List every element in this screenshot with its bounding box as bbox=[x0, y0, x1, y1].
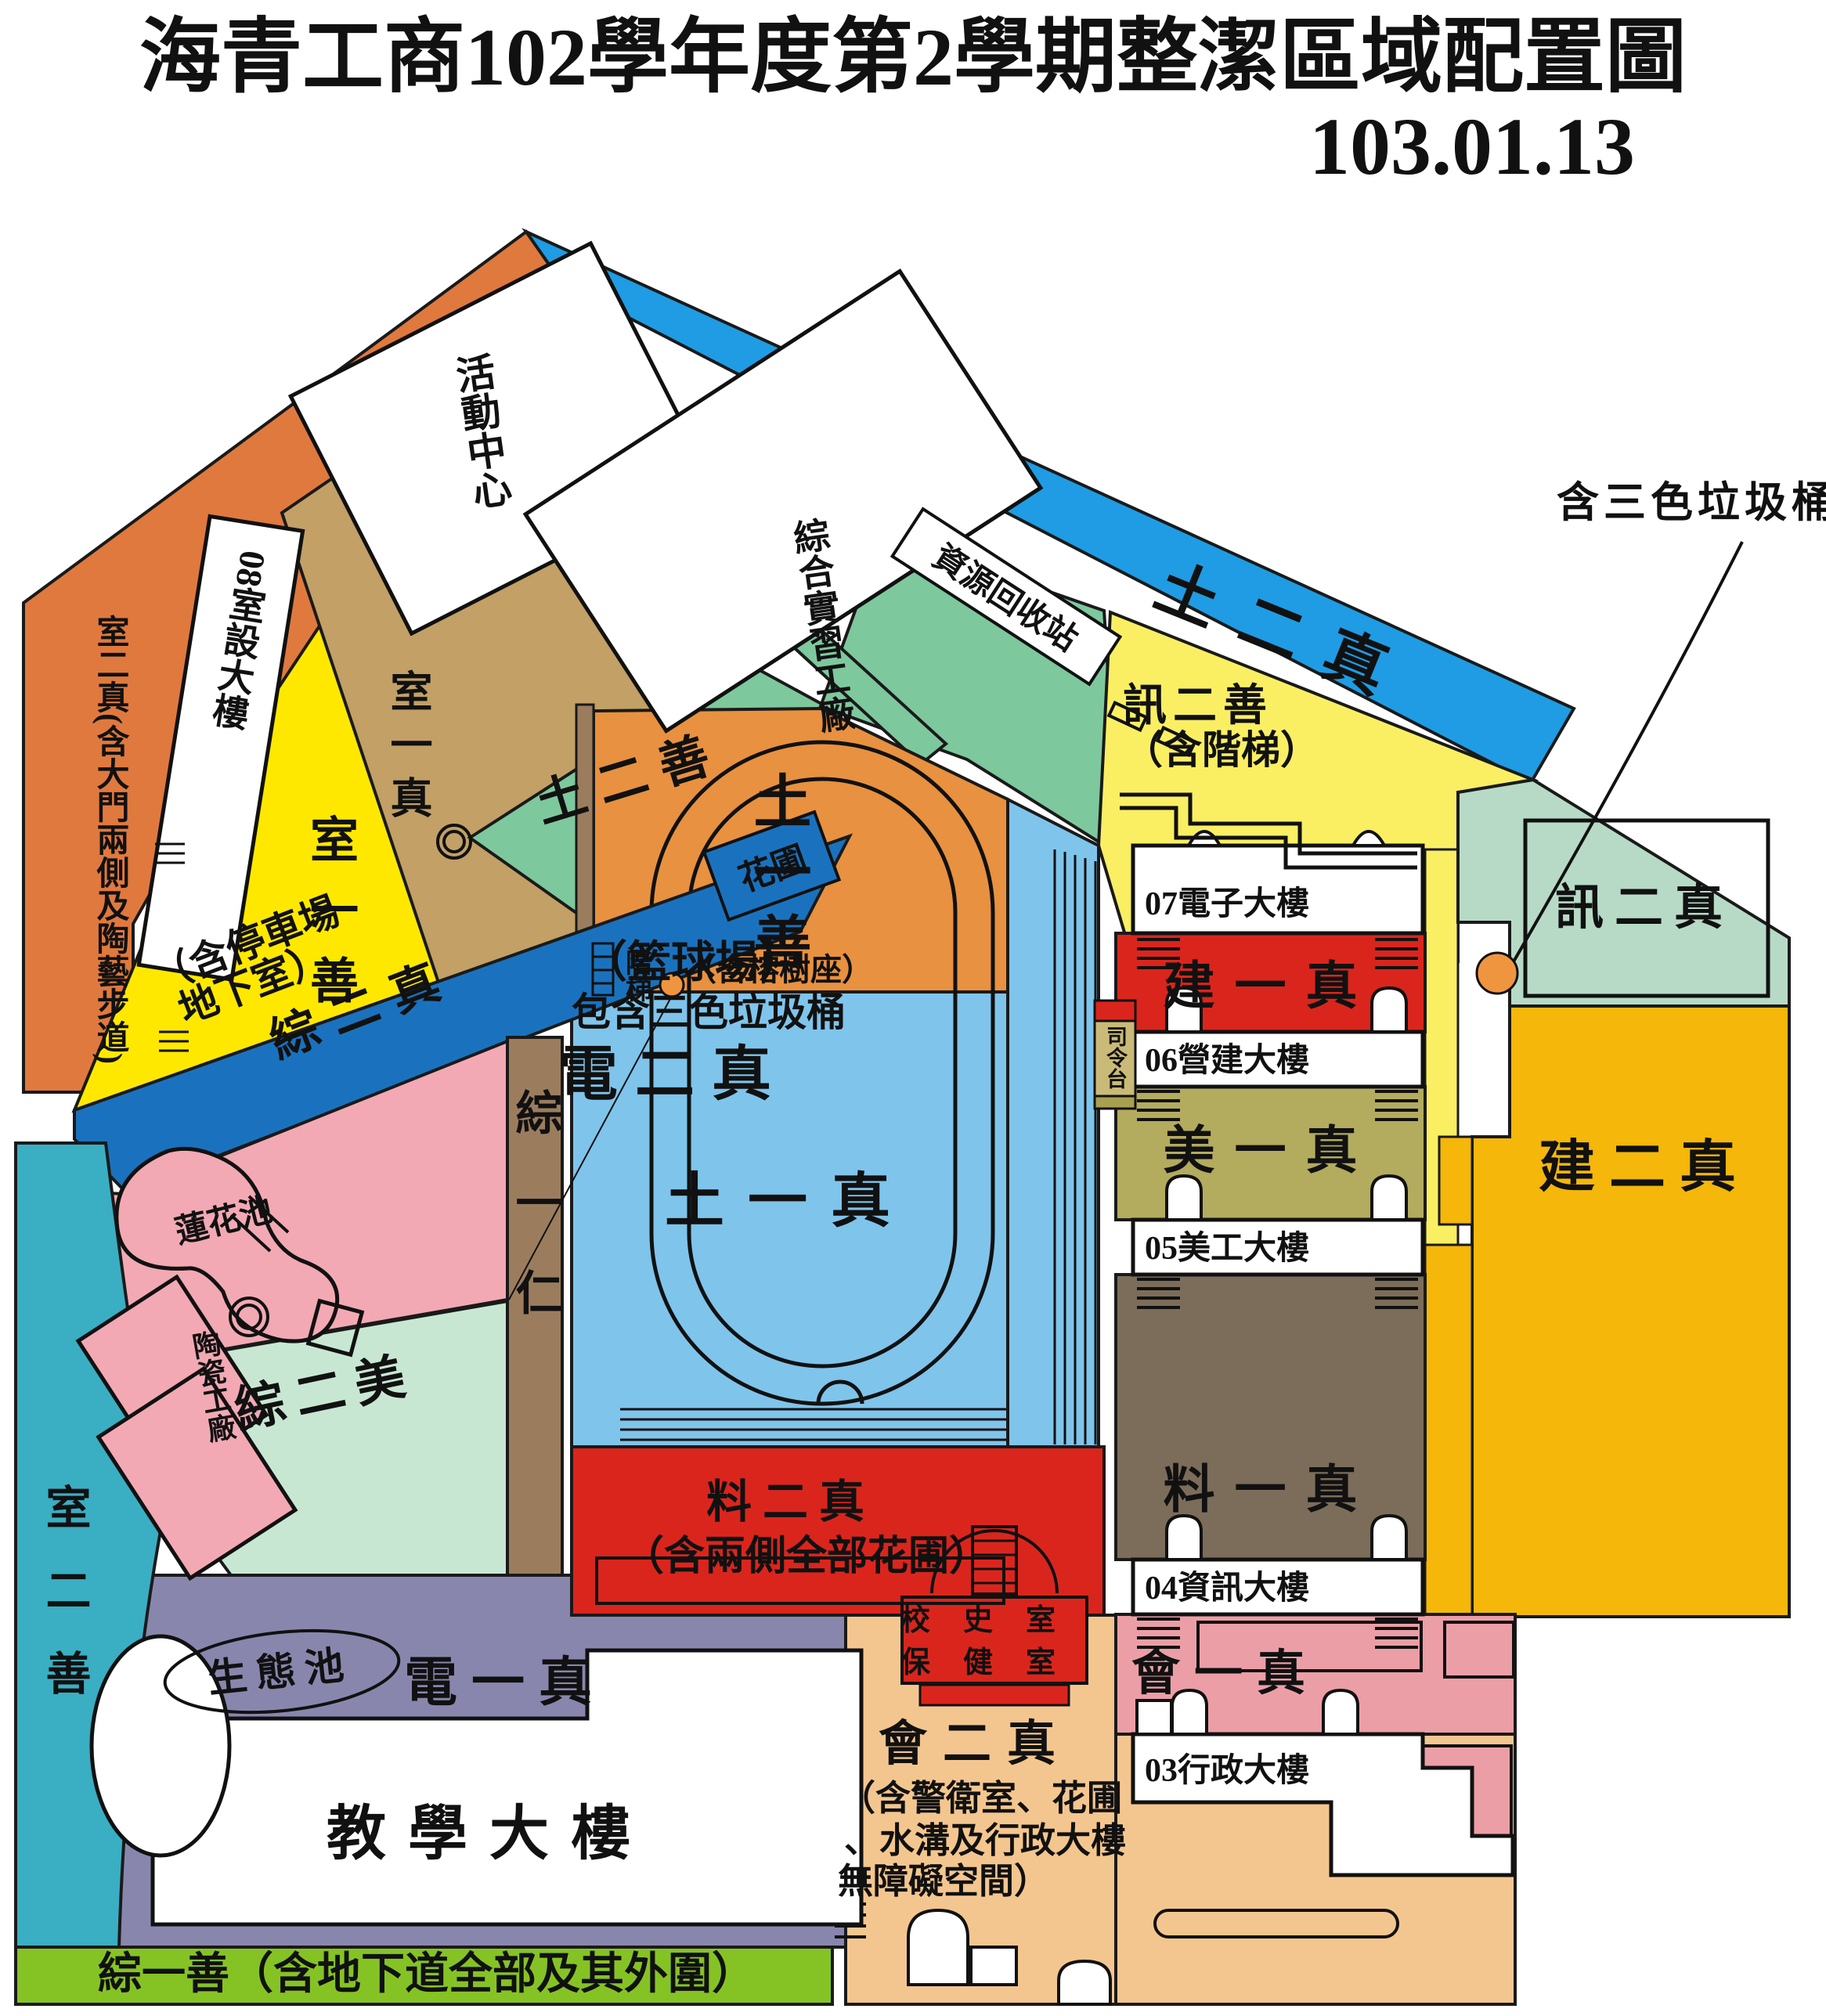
xun-er-shan-note-label: （含階梯） bbox=[1124, 728, 1319, 772]
school-history-label: 校史室 bbox=[900, 1603, 1088, 1637]
dian-yi-zhen-label: 電一真 bbox=[404, 1653, 606, 1712]
building-06-label: 06營建大樓 bbox=[1145, 1042, 1309, 1079]
region-liao-er-zhen bbox=[572, 1447, 1104, 1615]
track-top-label: 土一善 bbox=[745, 771, 810, 983]
court-note2-label: 包含三色垃圾桶 bbox=[572, 990, 846, 1034]
liao-yi-zhen-label: 料一真 bbox=[1164, 1462, 1377, 1519]
hui-er-note1-label: （含警衛室、花圃 bbox=[840, 1778, 1122, 1818]
history-box-step bbox=[920, 1685, 1069, 1705]
health-room-label: 保健室 bbox=[900, 1646, 1088, 1679]
outer-left-band-label: 室二真(含大門兩側及陶藝步道) bbox=[92, 615, 130, 1064]
tan-area-label: 室一真 bbox=[384, 669, 431, 829]
trash-dot-right bbox=[1477, 953, 1517, 994]
stage-base bbox=[1095, 1096, 1135, 1109]
jian-yi-zhen-label: 建一真 bbox=[1164, 958, 1377, 1015]
region-jian-er-zhen bbox=[1472, 1006, 1789, 1617]
zong-yi-ren-label: 綜一仁 bbox=[509, 1088, 562, 1358]
building-07-label: 07電子大樓 bbox=[1145, 885, 1309, 922]
teaching-building-label: 教學大樓 bbox=[327, 1801, 652, 1867]
hui-er-zhen-label: 會二真 bbox=[879, 1717, 1071, 1771]
hui-yi-zhen-label: 會一真 bbox=[1131, 1646, 1319, 1700]
track-bottom-label: 土一真 bbox=[665, 1169, 914, 1235]
jian-er-zhen-label: 建二真 bbox=[1539, 1136, 1750, 1199]
xun-er-zhen-label: 訊二真 bbox=[1555, 881, 1734, 935]
bottom-strip-label: 綜一善（含地下道全部及其外圍） bbox=[98, 1949, 756, 1999]
page-date: 103.01.13 bbox=[1309, 102, 1635, 192]
teal-left-label: 室二善 bbox=[39, 1484, 90, 1733]
campus-cleaning-map-page: 海青工商102學年度第2學期整潔區域配置圖 103.01.13 bbox=[0, 0, 1826, 2016]
gold-side-strip bbox=[1425, 1245, 1472, 1617]
trash-note-label: 含三色垃圾桶 bbox=[1557, 479, 1826, 526]
mei-yi-zhen-label: 美一真 bbox=[1164, 1123, 1377, 1180]
page-title: 海青工商102學年度第2學期整潔區域配置圖 bbox=[139, 13, 1687, 103]
building-04-label: 04資訊大樓 bbox=[1145, 1570, 1309, 1607]
track-top-note-label: （含榕樹座） bbox=[685, 952, 873, 987]
gold-notch bbox=[1439, 1137, 1472, 1224]
hui-er-note3-label: 無障礙空間） bbox=[838, 1862, 1049, 1901]
liao-er-zhen-label: 料二真 bbox=[706, 1477, 875, 1527]
building-03-label: 03行政大樓 bbox=[1145, 1752, 1309, 1789]
campus-map-svg: 海青工商102學年度第2學期整潔區域配置圖 103.01.13 bbox=[0, 0, 1826, 2016]
stage-label: 司令台 bbox=[1103, 1026, 1128, 1089]
court-name-label: 電二真 bbox=[558, 1042, 788, 1108]
hui-er-note2-label: 、水溝及行政大樓 bbox=[844, 1821, 1126, 1860]
liao-er-zhen-note-label: （含兩側全部花圃） bbox=[623, 1533, 990, 1579]
stage-top bbox=[1095, 1001, 1135, 1021]
xun-er-shan-label: 訊二善 bbox=[1123, 682, 1273, 730]
building-05-label: 05美工大樓 bbox=[1145, 1230, 1309, 1267]
